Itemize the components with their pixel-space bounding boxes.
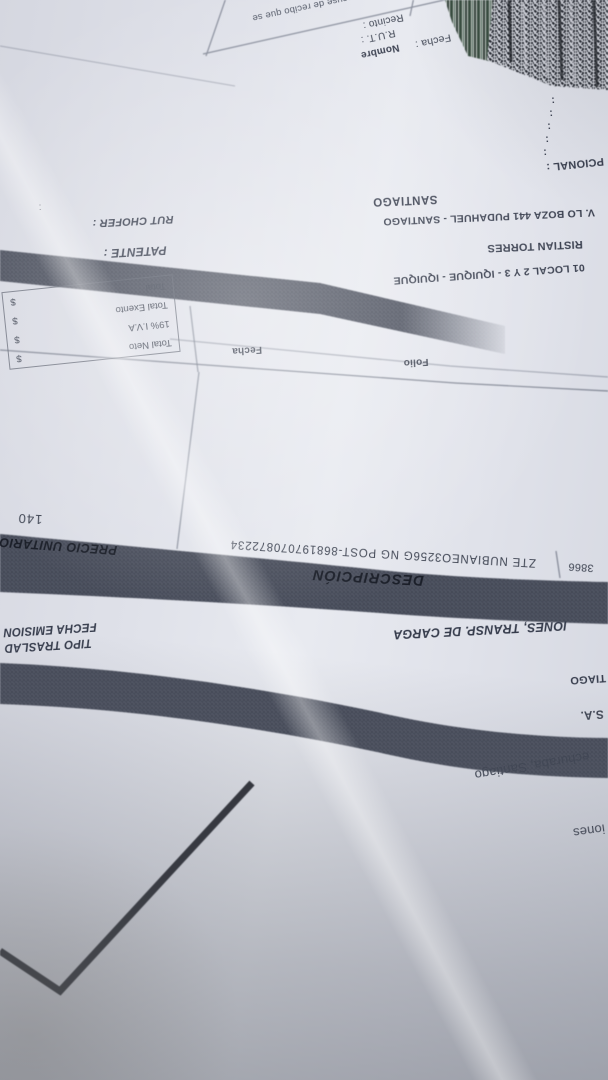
acuse-box-borders (203, 0, 480, 56)
stray-field-colon: : (38, 201, 42, 212)
stray-printed-line (0, 46, 235, 86)
total-exento-currency: $ (12, 315, 18, 326)
total-neto-label: Total Neto (128, 337, 172, 352)
iva-label: 19% I.V.A (128, 318, 170, 333)
item-code-fragment: 3866 (568, 560, 594, 574)
document-frame-corner (0, 783, 252, 991)
folio-ref-header: Folio (403, 356, 428, 368)
photo-of-upside-down-invoice: l acuse de recibo que se Recinto : R.U.T… (0, 0, 608, 1080)
printed-graphics-layer (0, 0, 608, 1080)
iva-currency: $ (14, 334, 20, 345)
total-label: Total (145, 280, 166, 293)
unit-price-value-fragment: 140 (17, 511, 42, 527)
total-currency: $ (10, 296, 16, 307)
total-exento-label: Total Exento (115, 299, 168, 315)
issuer-sa-fragment: S.A. (580, 707, 604, 721)
issuer-city-fragment: TIAGO (570, 672, 607, 686)
total-neto-currency: $ (16, 352, 22, 363)
pdf417-barcode (487, 0, 608, 90)
fecha-ref-header: Fecha (232, 344, 262, 357)
